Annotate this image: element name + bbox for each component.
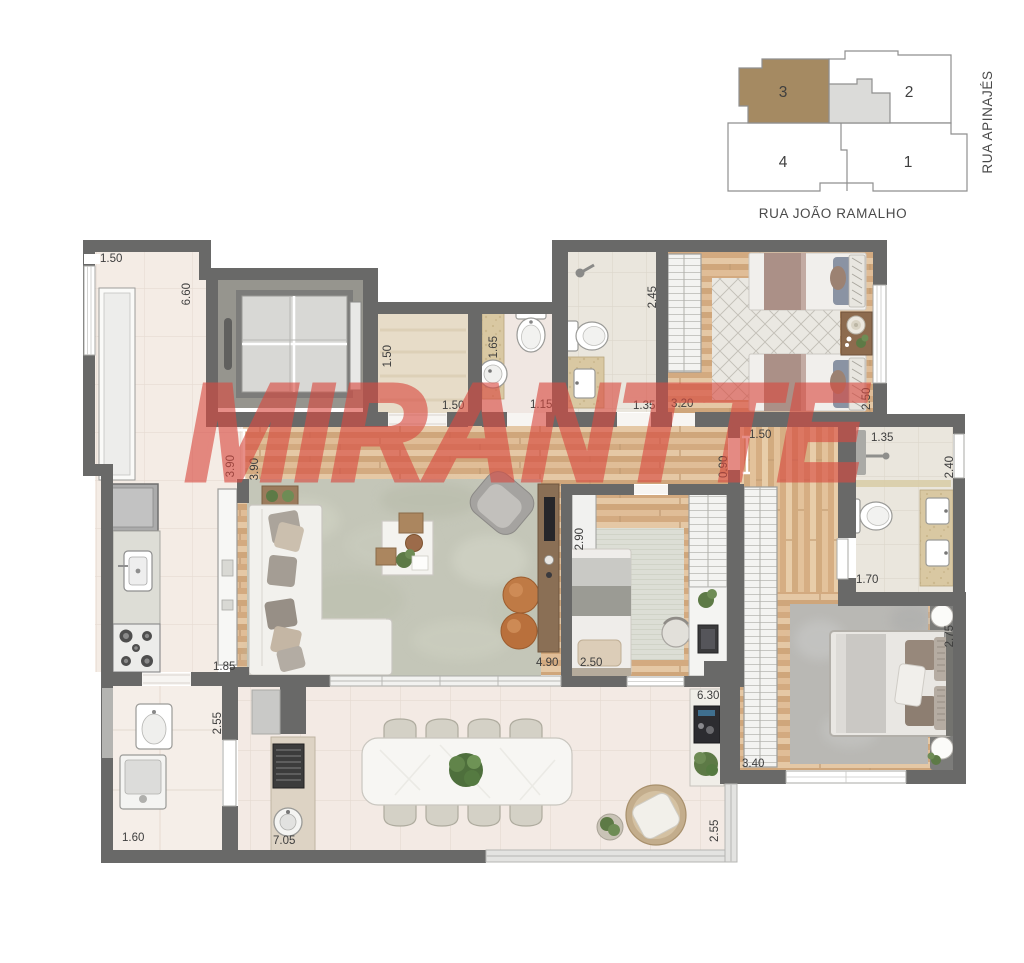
svg-text:1.50: 1.50 xyxy=(100,253,122,265)
svg-text:4: 4 xyxy=(779,154,788,171)
svg-text:2: 2 xyxy=(905,84,914,101)
svg-text:2.90: 2.90 xyxy=(574,528,586,550)
svg-text:2.75: 2.75 xyxy=(944,625,956,647)
svg-text:4.90: 4.90 xyxy=(536,657,558,669)
svg-text:6.30: 6.30 xyxy=(697,690,719,702)
svg-text:6.60: 6.60 xyxy=(181,283,193,305)
svg-text:RUA JOÃO RAMALHO: RUA JOÃO RAMALHO xyxy=(759,206,907,221)
svg-text:RUA APINAJÉS: RUA APINAJÉS xyxy=(980,70,995,173)
svg-text:1: 1 xyxy=(904,154,913,171)
svg-text:7.05: 7.05 xyxy=(273,835,295,847)
svg-text:MIRANTTE: MIRANTTE xyxy=(185,356,869,510)
svg-text:2.45: 2.45 xyxy=(647,286,659,308)
svg-text:1.35: 1.35 xyxy=(871,432,893,444)
svg-text:1.85: 1.85 xyxy=(213,661,235,673)
svg-text:2.50: 2.50 xyxy=(580,657,602,669)
svg-text:2.55: 2.55 xyxy=(212,712,224,734)
svg-text:2.40: 2.40 xyxy=(944,456,956,478)
svg-text:1.70: 1.70 xyxy=(856,574,878,586)
svg-text:2.55: 2.55 xyxy=(709,820,721,842)
svg-text:3: 3 xyxy=(779,84,788,101)
svg-text:3.40: 3.40 xyxy=(742,758,764,770)
svg-text:1.60: 1.60 xyxy=(122,832,144,844)
